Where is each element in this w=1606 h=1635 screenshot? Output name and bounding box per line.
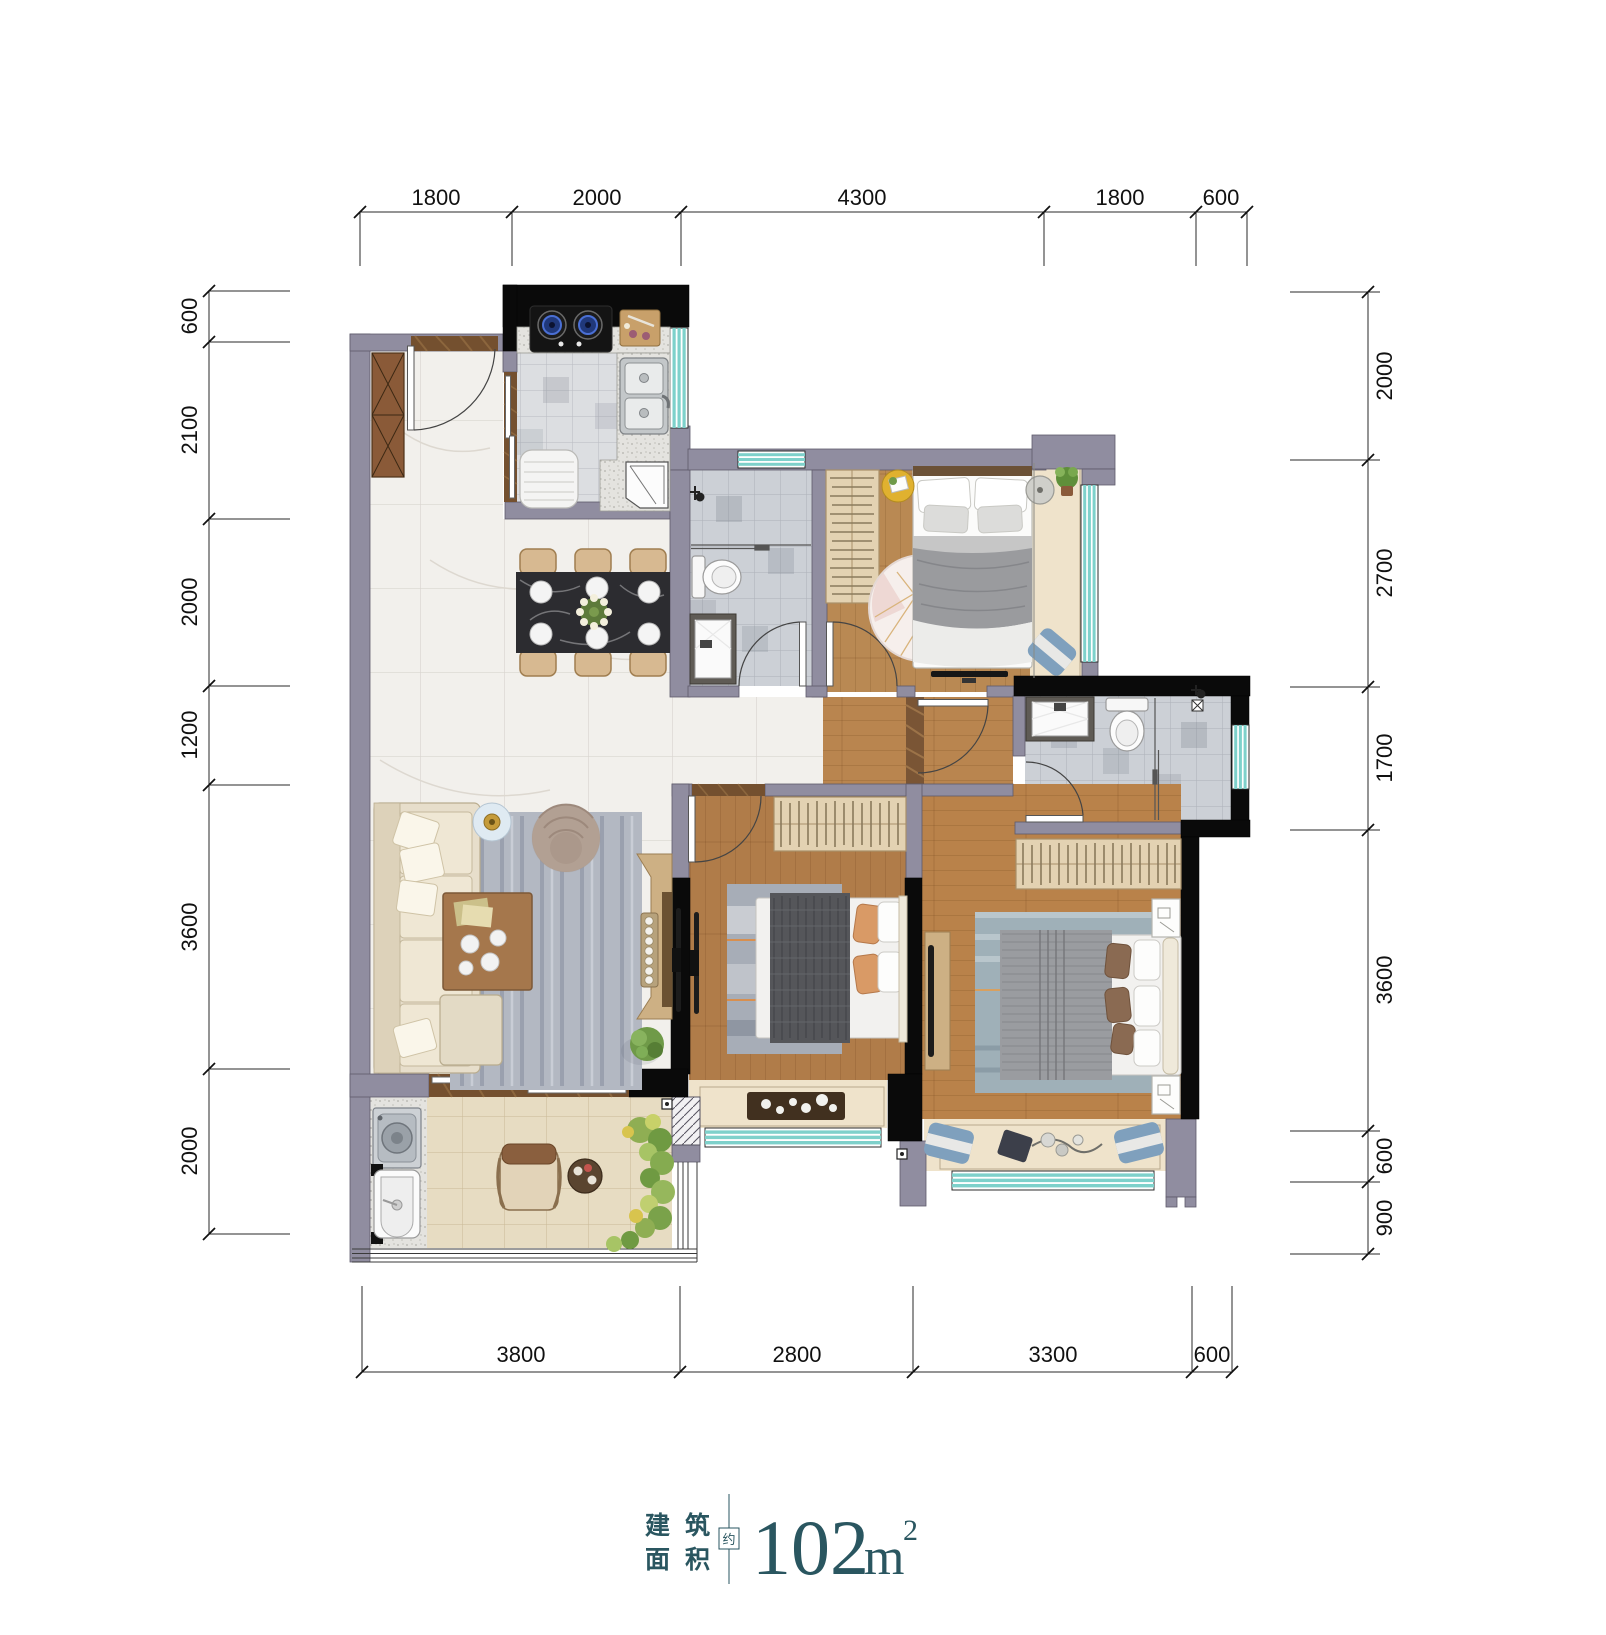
svg-text:600: 600: [1203, 185, 1240, 210]
svg-text:3600: 3600: [1372, 956, 1397, 1005]
svg-text:3600: 3600: [177, 903, 202, 952]
svg-text:1800: 1800: [412, 185, 461, 210]
svg-text:建筑: 建筑: [645, 1511, 725, 1540]
svg-text:2000: 2000: [1372, 352, 1397, 401]
svg-text:600: 600: [177, 298, 202, 335]
svg-text:1800: 1800: [1096, 185, 1145, 210]
svg-text:2700: 2700: [1372, 549, 1397, 598]
svg-text:1700: 1700: [1372, 734, 1397, 783]
svg-text:m: m: [864, 1529, 904, 1586]
svg-text:面积: 面积: [645, 1546, 725, 1574]
svg-text:2800: 2800: [773, 1342, 822, 1367]
svg-text:1200: 1200: [177, 711, 202, 760]
svg-text:2000: 2000: [177, 1127, 202, 1176]
svg-text:2000: 2000: [573, 185, 622, 210]
svg-text:102: 102: [752, 1504, 869, 1591]
svg-text:约: 约: [722, 1532, 735, 1547]
svg-text:4300: 4300: [838, 185, 887, 210]
svg-text:900: 900: [1372, 1200, 1397, 1237]
svg-text:2: 2: [903, 1514, 918, 1547]
svg-text:3300: 3300: [1029, 1342, 1078, 1367]
svg-text:600: 600: [1372, 1138, 1397, 1175]
svg-text:600: 600: [1194, 1342, 1231, 1367]
svg-text:3800: 3800: [497, 1342, 546, 1367]
svg-text:2000: 2000: [177, 578, 202, 627]
svg-text:2100: 2100: [177, 406, 202, 455]
